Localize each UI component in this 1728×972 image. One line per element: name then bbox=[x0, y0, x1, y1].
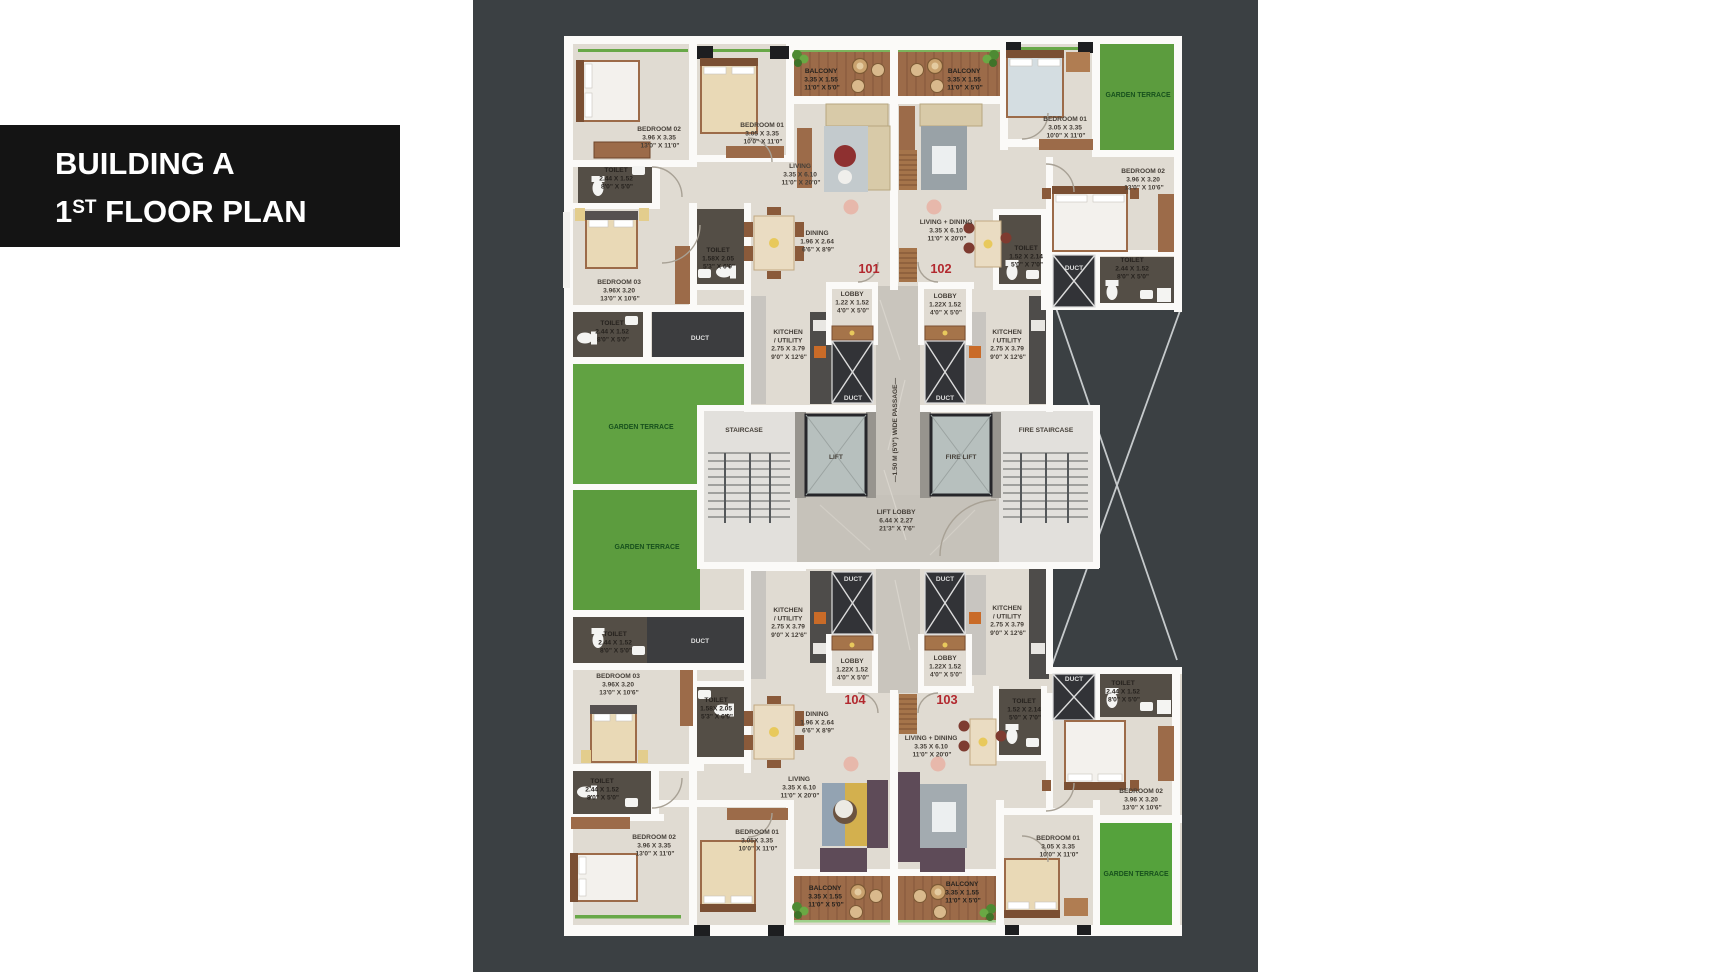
svg-text:KITCHEN / UTILITY 2.75 X 3.79: KITCHEN / UTILITY 2.75 X 3.79 9'0" X 12'… bbox=[771, 329, 807, 361]
svg-text:BEDROOM 03 3.96X 3.20 13'0" X: BEDROOM 03 3.96X 3.20 13'0" X 10'6" bbox=[597, 279, 642, 303]
svg-text:LOBBY 1.22X 1.52 4'0" X 5'0": LOBBY 1.22X 1.52 4'0" X 5'0" bbox=[836, 658, 870, 682]
svg-text:—1.50 M (5'0") WIDE PASSAGE—: —1.50 M (5'0") WIDE PASSAGE— bbox=[892, 377, 899, 482]
svg-text:LOBBY 1.22X 1.52 4'0" X 5'0": LOBBY 1.22X 1.52 4'0" X 5'0" bbox=[929, 655, 963, 679]
svg-text:STAIRCASE: STAIRCASE bbox=[725, 427, 763, 434]
svg-text:BUILDING A: BUILDING A bbox=[55, 146, 235, 181]
svg-text:TOILET 1.52 X 2.14 5'0" X 7'0": TOILET 1.52 X 2.14 5'0" X 7'0" bbox=[1009, 245, 1045, 269]
svg-text:BEDROOM 02 3.96 X 3.35 13'0" X: BEDROOM 02 3.96 X 3.35 13'0" X 11'0" bbox=[637, 126, 682, 150]
svg-text:BALCONY 3.35 X 1.55 11'0" X 5': BALCONY 3.35 X 1.55 11'0" X 5'0" bbox=[947, 68, 983, 92]
svg-text:DINING 1.96 X 2.64 6'6" X 8'9": DINING 1.96 X 2.64 6'6" X 8'9" bbox=[800, 230, 836, 254]
svg-text:BALCONY 3.35 X 1.55 11'0" X 5': BALCONY 3.35 X 1.55 11'0" X 5'0" bbox=[804, 68, 840, 92]
svg-text:103: 103 bbox=[936, 692, 957, 707]
svg-text:DUCT: DUCT bbox=[936, 395, 954, 402]
svg-text:TOILET 2.44 X 1.52 8'0" X 5'0": TOILET 2.44 X 1.52 8'0" X 5'0" bbox=[595, 320, 631, 344]
svg-text:TOILET 2.44 X 1.52 8'0" X 5'0": TOILET 2.44 X 1.52 8'0" X 5'0" bbox=[598, 631, 634, 655]
svg-text:KITCHEN / UTILITY 2.75 X 3.79: KITCHEN / UTILITY 2.75 X 3.79 9'0" X 12'… bbox=[990, 605, 1026, 637]
svg-text:BEDROOM 01 3.05 X 3.35 10'0" X: BEDROOM 01 3.05 X 3.35 10'0" X 11'0" bbox=[1036, 835, 1081, 859]
svg-text:GARDEN TERRACE: GARDEN TERRACE bbox=[1103, 871, 1168, 878]
svg-text:102: 102 bbox=[930, 261, 951, 276]
svg-text:FIRE STAIRCASE: FIRE STAIRCASE bbox=[1019, 427, 1074, 434]
svg-text:BALCONY 3.35 X 1.55 11'0" X 5': BALCONY 3.35 X 1.55 11'0" X 5'0" bbox=[808, 885, 844, 909]
svg-text:GARDEN TERRACE: GARDEN TERRACE bbox=[1105, 92, 1170, 99]
svg-text:BEDROOM 01 3.05X 3.35 10'0" X: BEDROOM 01 3.05X 3.35 10'0" X 11'0" bbox=[735, 829, 780, 853]
svg-text:TOILET 2.44 X 1.52 8'0" X 5'0": TOILET 2.44 X 1.52 8'0" X 5'0" bbox=[585, 778, 621, 802]
svg-text:BEDROOM 02 3.96 X 3.20 13'0" X: BEDROOM 02 3.96 X 3.20 13'0" X 10'6" bbox=[1121, 168, 1166, 192]
svg-text:104: 104 bbox=[844, 692, 866, 707]
svg-text:GARDEN TERRACE: GARDEN TERRACE bbox=[614, 544, 679, 551]
svg-text:KITCHEN / UTILITY 2.75 X 3.79: KITCHEN / UTILITY 2.75 X 3.79 9'0" X 12'… bbox=[771, 607, 807, 639]
svg-text:TOILET 2.44 X 1.52 8'0" X 5'0": TOILET 2.44 X 1.52 8'0" X 5'0" bbox=[599, 167, 635, 191]
svg-text:KITCHEN / UTILITY 2.75 X 3.79: KITCHEN / UTILITY 2.75 X 3.79 9'0" X 12'… bbox=[990, 329, 1026, 361]
svg-text:BEDROOM 01 3.05 X 3.35 10'0" X: BEDROOM 01 3.05 X 3.35 10'0" X 11'0" bbox=[1043, 116, 1088, 140]
svg-text:DUCT: DUCT bbox=[844, 395, 862, 402]
svg-text:BEDROOM 02 3.96 X 3.35 13'0" X: BEDROOM 02 3.96 X 3.35 13'0" X 11'0" bbox=[632, 834, 677, 858]
svg-text:DINING 1.96 X 2.64 6'6" X 8'9": DINING 1.96 X 2.64 6'6" X 8'9" bbox=[800, 711, 836, 735]
svg-text:DUCT: DUCT bbox=[1065, 265, 1083, 272]
svg-text:BEDROOM 03 3.96X 3.20 13'0" X: BEDROOM 03 3.96X 3.20 13'0" X 10'6" bbox=[596, 673, 641, 697]
svg-text:GARDEN TERRACE: GARDEN TERRACE bbox=[608, 424, 673, 431]
svg-text:DUCT: DUCT bbox=[1065, 676, 1083, 683]
svg-text:LIFT: LIFT bbox=[829, 454, 843, 461]
svg-text:TOILET 1.58X 2.05 5'3" X 6'9": TOILET 1.58X 2.05 5'3" X 6'9" bbox=[700, 697, 734, 721]
svg-text:LOBBY 1.22X 1.52 4'0" X 5'0": LOBBY 1.22X 1.52 4'0" X 5'0" bbox=[929, 293, 963, 317]
svg-text:TOILET 1.58X 2.05 5'3" X 6'9": TOILET 1.58X 2.05 5'3" X 6'9" bbox=[702, 247, 736, 271]
svg-text:BALCONY 3.35 X 1.55 11'0" X 5': BALCONY 3.35 X 1.55 11'0" X 5'0" bbox=[945, 881, 981, 905]
svg-text:DUCT: DUCT bbox=[691, 335, 709, 342]
svg-text:DUCT: DUCT bbox=[691, 638, 709, 645]
svg-text:BEDROOM 01 3.05 X 3.35 10'0" X: BEDROOM 01 3.05 X 3.35 10'0" X 11'0" bbox=[740, 122, 785, 146]
svg-text:TOILET 2.44 X 1.52 8'0" X 5'0": TOILET 2.44 X 1.52 8'0" X 5'0" bbox=[1106, 680, 1142, 704]
svg-text:TOILET 1.52 X 2.14 5'0" X 7'0": TOILET 1.52 X 2.14 5'0" X 7'0" bbox=[1007, 698, 1043, 722]
svg-text:DUCT: DUCT bbox=[844, 576, 862, 583]
svg-text:BEDROOM 02 3.96 X 3.20 13'0" X: BEDROOM 02 3.96 X 3.20 13'0" X 10'6" bbox=[1119, 788, 1164, 812]
svg-text:TOILET 2.44 X 1.52 8'0" X 5'0": TOILET 2.44 X 1.52 8'0" X 5'0" bbox=[1115, 257, 1151, 281]
svg-text:LIFT LOBBY 6.44 X 2.27 21'3" X: LIFT LOBBY 6.44 X 2.27 21'3" X 7'6" bbox=[877, 509, 918, 533]
svg-text:101: 101 bbox=[858, 261, 879, 276]
svg-text:FIRE LIFT: FIRE LIFT bbox=[946, 454, 977, 461]
svg-text:DUCT: DUCT bbox=[936, 576, 954, 583]
